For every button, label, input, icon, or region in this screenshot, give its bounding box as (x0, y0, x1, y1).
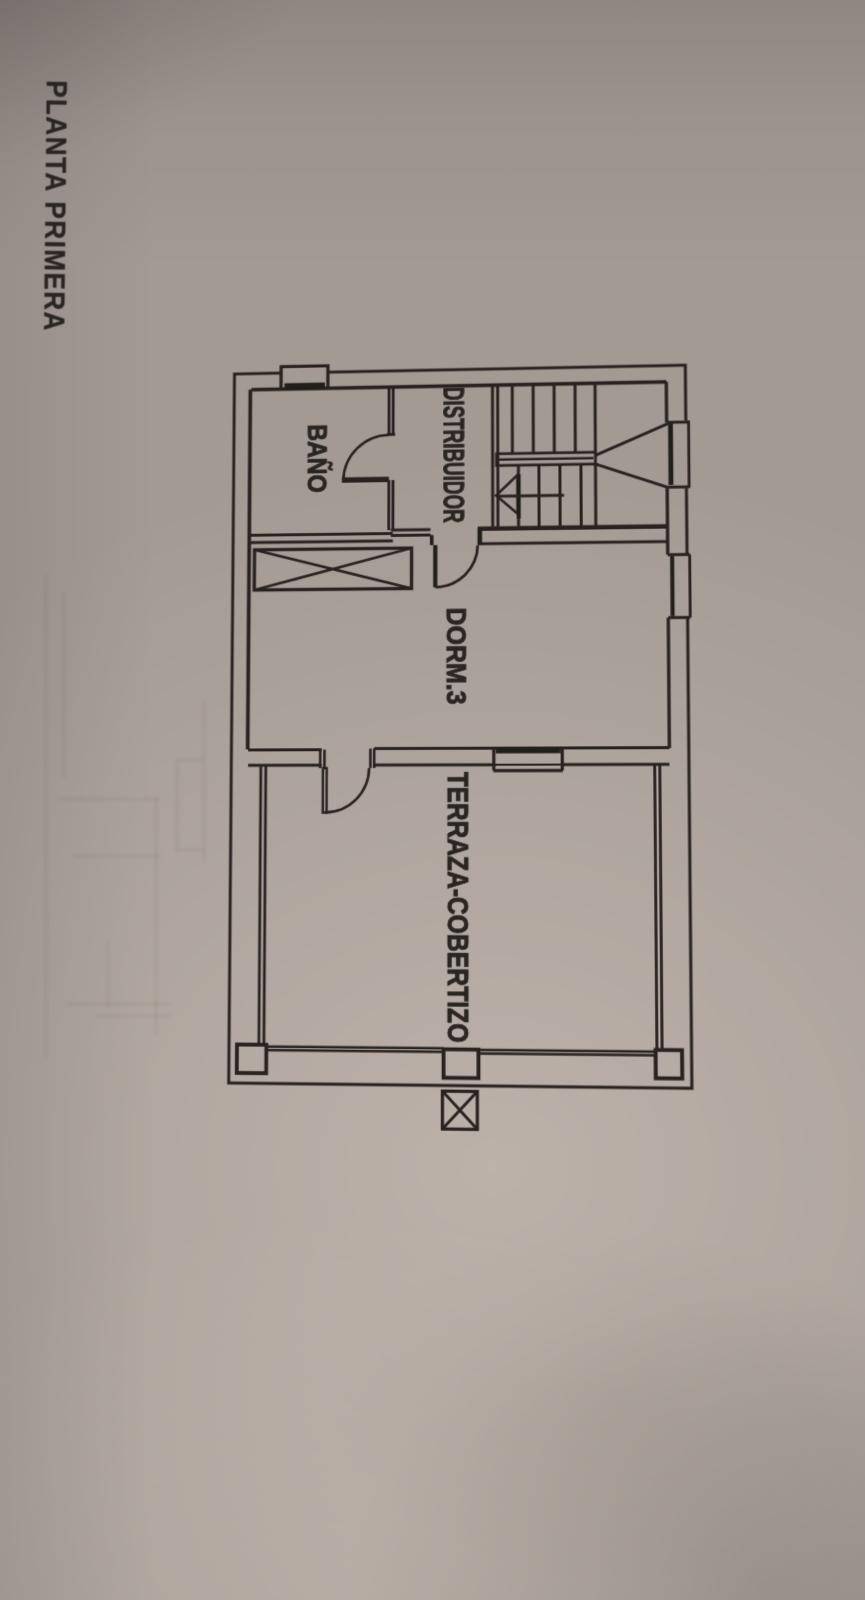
svg-text:DISTRIBUIDOR: DISTRIBUIDOR (436, 387, 469, 523)
svg-text:DORM.3: DORM.3 (441, 608, 472, 705)
svg-text:BAÑO: BAÑO (301, 424, 332, 493)
svg-text:TERRAZA-COBERTIZO: TERRAZA-COBERTIZO (441, 772, 474, 1043)
